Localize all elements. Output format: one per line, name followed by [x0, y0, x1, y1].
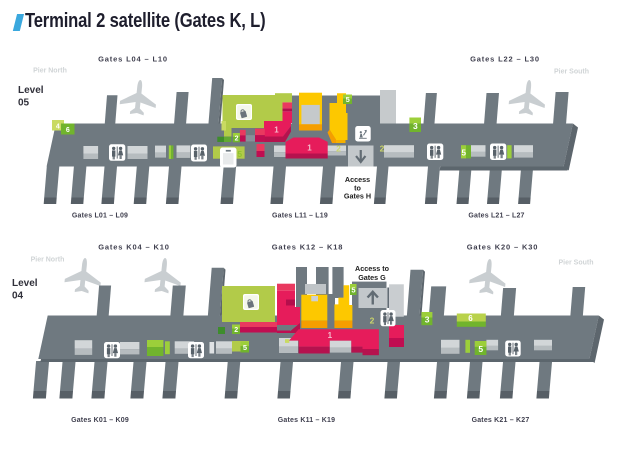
- svg-text:Gates L04 – L10: Gates L04 – L10: [98, 55, 168, 64]
- svg-text:Gates H: Gates H: [344, 192, 371, 201]
- svg-text:Gates K11 – K19: Gates K11 – K19: [278, 417, 335, 424]
- svg-text:2: 2: [235, 135, 239, 142]
- svg-text:5: 5: [243, 343, 247, 352]
- svg-text:Gates L21 – L27: Gates L21 – L27: [468, 212, 524, 219]
- svg-text:Pier North: Pier North: [31, 257, 65, 264]
- svg-text:4: 4: [56, 124, 60, 131]
- svg-text:2: 2: [380, 144, 385, 154]
- svg-text:5: 5: [461, 149, 466, 158]
- svg-text:Gates L11 – L19: Gates L11 – L19: [272, 212, 328, 219]
- svg-text:1: 1: [328, 331, 333, 340]
- svg-text:Gates K04 – K10: Gates K04 – K10: [98, 243, 170, 252]
- svg-text:5: 5: [351, 286, 355, 295]
- svg-text:5: 5: [346, 95, 350, 104]
- svg-text:Gates K12 – K18: Gates K12 – K18: [272, 243, 344, 252]
- svg-text:2: 2: [234, 327, 238, 334]
- svg-text:1: 1: [274, 126, 279, 135]
- svg-text:1: 1: [307, 144, 312, 153]
- svg-text:Gates K01 – K09: Gates K01 – K09: [71, 417, 129, 424]
- svg-text:Pier North: Pier North: [33, 68, 67, 75]
- svg-text:Level: Level: [12, 278, 38, 289]
- svg-text:Gates K20 – K30: Gates K20 – K30: [467, 243, 539, 252]
- svg-text:5: 5: [237, 149, 242, 159]
- svg-text:Gates L01 – L09: Gates L01 – L09: [72, 212, 128, 219]
- svg-text:3: 3: [425, 314, 430, 324]
- svg-text:6: 6: [468, 314, 473, 323]
- svg-text:2: 2: [336, 144, 341, 154]
- svg-text:Level: Level: [18, 85, 44, 96]
- svg-text:Access to: Access to: [355, 264, 390, 273]
- svg-text:6: 6: [66, 127, 70, 134]
- svg-text:Pier South: Pier South: [558, 260, 593, 267]
- svg-text:Pier South: Pier South: [554, 69, 589, 76]
- svg-text:Gates L22 – L30: Gates L22 – L30: [470, 55, 540, 64]
- svg-text:3: 3: [413, 121, 418, 131]
- svg-text:04: 04: [12, 291, 24, 302]
- svg-text:05: 05: [18, 98, 30, 109]
- svg-text:5: 5: [478, 344, 483, 354]
- svg-text:2: 2: [370, 316, 375, 326]
- svg-text:Gates G: Gates G: [358, 273, 386, 282]
- svg-text:Gates K21 – K27: Gates K21 – K27: [472, 417, 530, 424]
